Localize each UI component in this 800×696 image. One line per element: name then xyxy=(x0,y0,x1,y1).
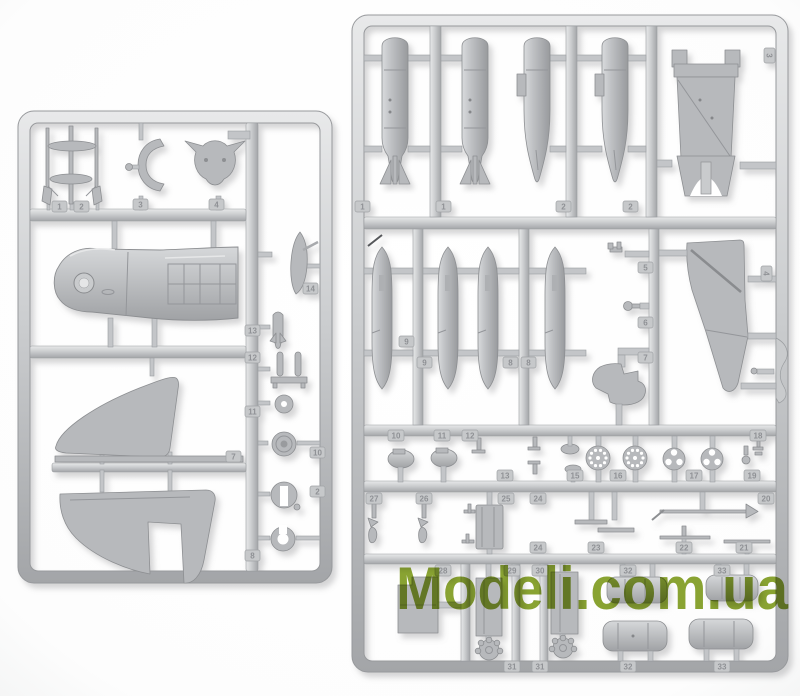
svg-text:23: 23 xyxy=(592,544,601,553)
part-number-tag: 11 xyxy=(245,406,260,417)
svg-text:24: 24 xyxy=(534,544,543,553)
part-number-tag: 1 xyxy=(436,201,451,212)
sprue-b-runner-3 xyxy=(364,481,776,492)
part-number-tag: 7 xyxy=(226,451,241,462)
part-number-tag: 2 xyxy=(310,486,325,497)
svg-text:31: 31 xyxy=(536,663,545,672)
svg-text:10: 10 xyxy=(392,432,401,441)
svg-text:10: 10 xyxy=(313,449,322,458)
hub-disc-part xyxy=(272,432,296,456)
svg-text:2: 2 xyxy=(628,203,633,212)
part-number-tag: 20 xyxy=(758,493,774,504)
sprue-b-runner-1 xyxy=(364,217,776,229)
svg-text:3: 3 xyxy=(765,53,774,58)
part-number-tag: 31 xyxy=(504,661,520,672)
svg-text:8: 8 xyxy=(508,359,513,368)
part-number-tag: 9 xyxy=(417,357,432,368)
svg-text:8: 8 xyxy=(250,552,255,561)
part-number-tag: 2 xyxy=(74,201,89,212)
part-number-tag: 2 xyxy=(623,201,638,212)
svg-text:11: 11 xyxy=(438,432,447,441)
part-number-tag: 17 xyxy=(686,470,702,481)
part-number-tag: 8 xyxy=(503,357,518,368)
fuselage-nose-part xyxy=(54,247,238,320)
svg-text:15: 15 xyxy=(571,472,580,481)
part-number-tag: 4 xyxy=(209,199,224,210)
part-number-tag: 21 xyxy=(736,542,752,553)
float-half-part xyxy=(545,247,565,389)
sprue-photo-canvas: 1 2 3 4 14 13 12 11 10 2 8 7 xyxy=(0,0,800,696)
svg-text:5: 5 xyxy=(643,264,648,273)
part-number-tag: 24 xyxy=(530,493,546,504)
svg-text:26: 26 xyxy=(420,495,429,504)
part-number-tag: 3 xyxy=(133,199,148,210)
svg-text:32: 32 xyxy=(624,663,633,672)
part-number-tag: 7 xyxy=(638,352,653,363)
part-number-tag: 12 xyxy=(462,430,478,441)
svg-text:1: 1 xyxy=(57,203,62,212)
hull-step-part xyxy=(672,50,740,196)
svg-text:14: 14 xyxy=(306,285,315,294)
svg-text:4: 4 xyxy=(762,271,771,276)
part-number-tag: 6 xyxy=(638,317,653,328)
svg-text:17: 17 xyxy=(690,472,699,481)
part-number-tag: 33 xyxy=(714,661,730,672)
svg-text:7: 7 xyxy=(643,354,648,363)
part-number-tag: 8 xyxy=(245,550,260,561)
part-number-tag: 12 xyxy=(245,352,260,363)
svg-text:22: 22 xyxy=(680,544,689,553)
svg-text:12: 12 xyxy=(248,354,257,363)
part-number-tag: 5 xyxy=(638,262,653,273)
svg-text:31: 31 xyxy=(508,663,517,672)
part-number-tag: 1 xyxy=(52,201,67,212)
svg-text:24: 24 xyxy=(534,495,543,504)
svg-text:21: 21 xyxy=(740,544,749,553)
part-number-tag: 32 xyxy=(620,661,636,672)
float-half-part xyxy=(372,247,392,389)
svg-text:2: 2 xyxy=(79,203,84,212)
float-half-part xyxy=(438,247,458,389)
svg-text:9: 9 xyxy=(422,359,427,368)
part-number-tag: 10 xyxy=(388,430,404,441)
svg-text:9: 9 xyxy=(404,338,409,347)
part-number-tag: 25 xyxy=(498,493,514,504)
part-number-tag: 14 xyxy=(303,283,318,294)
svg-text:27: 27 xyxy=(370,495,379,504)
svg-text:8: 8 xyxy=(526,359,531,368)
part-number-tag: 13 xyxy=(245,325,260,336)
svg-text:7: 7 xyxy=(231,453,236,462)
part-number-tag: 16 xyxy=(610,470,626,481)
part-number-tag: 15 xyxy=(567,470,583,481)
svg-text:19: 19 xyxy=(748,472,757,481)
svg-text:18: 18 xyxy=(754,432,763,441)
part-number-tag: 23 xyxy=(588,542,604,553)
svg-text:1: 1 xyxy=(360,203,365,212)
svg-text:2: 2 xyxy=(315,488,320,497)
part-number-tag: 13 xyxy=(497,470,513,481)
photo-of-model-kit-sprues: 1 2 3 4 14 13 12 11 10 2 8 7 xyxy=(0,0,800,696)
svg-text:6: 6 xyxy=(643,319,648,328)
part-number-tag: 4 xyxy=(761,266,772,281)
sprue-a-runner-3 xyxy=(52,463,246,472)
part-number-tag: 11 xyxy=(434,430,450,441)
small-wheel-part xyxy=(275,395,293,413)
part-number-tag: 18 xyxy=(750,430,766,441)
svg-text:25: 25 xyxy=(502,495,511,504)
svg-text:33: 33 xyxy=(718,663,727,672)
sprue-b-runner-2 xyxy=(364,425,776,436)
svg-text:13: 13 xyxy=(501,472,510,481)
svg-text:13: 13 xyxy=(248,327,257,336)
frame-edge-stub xyxy=(757,369,774,374)
svg-text:12: 12 xyxy=(466,432,475,441)
svg-text:4: 4 xyxy=(214,201,219,210)
sprue-a-vertical-runner xyxy=(246,123,258,571)
svg-text:20: 20 xyxy=(762,495,771,504)
part-number-tag: 9 xyxy=(399,336,414,347)
sprue-a-runner-2 xyxy=(30,346,246,358)
svg-text:3: 3 xyxy=(138,201,143,210)
part-number-tag: 2 xyxy=(556,201,571,212)
svg-text:2: 2 xyxy=(561,203,566,212)
part-number-tag: 24 xyxy=(530,542,546,553)
part-number-tag: 8 xyxy=(521,357,536,368)
svg-text:16: 16 xyxy=(614,472,623,481)
float-half-part xyxy=(478,247,498,389)
part-number-tag: 10 xyxy=(310,447,325,458)
watermark-text: Modeli.com.ua xyxy=(396,555,789,622)
part-number-tag: 3 xyxy=(764,48,775,63)
part-number-tag: 31 xyxy=(532,661,548,672)
part-number-tag: 19 xyxy=(744,470,760,481)
svg-text:1: 1 xyxy=(441,203,446,212)
part-number-tag: 27 xyxy=(366,493,382,504)
part-number-tag: 22 xyxy=(676,542,692,553)
part-number-tag: 1 xyxy=(355,201,370,212)
part-number-tag: 26 xyxy=(416,493,432,504)
svg-text:11: 11 xyxy=(248,408,257,417)
